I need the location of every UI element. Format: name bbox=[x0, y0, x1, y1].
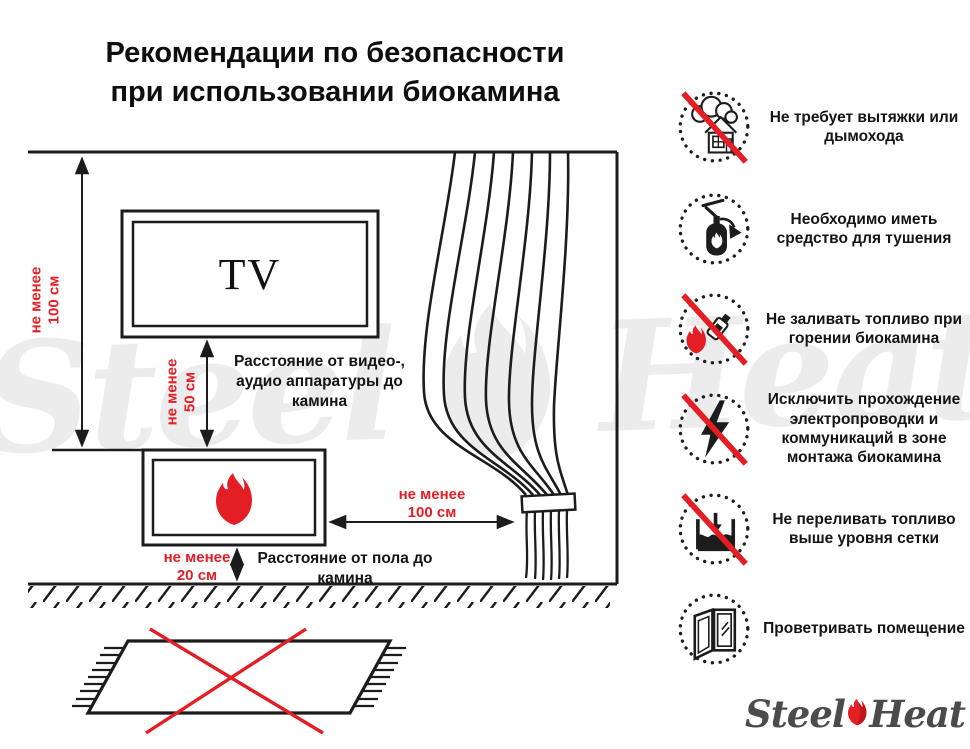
no-wiring-icon bbox=[675, 390, 753, 468]
safety-item-no-wiring: Исключить прохождение электропроводки и … bbox=[655, 388, 967, 470]
no-overfill-icon bbox=[675, 490, 753, 568]
safety-item-extinguisher: Необходимо иметь средство для тушения bbox=[655, 188, 967, 270]
curtain-distance-label: не менее 100 см bbox=[389, 486, 475, 521]
logo-steel-text: Steel bbox=[745, 696, 845, 733]
carpet bbox=[72, 629, 406, 733]
safety-item-text: Не переливать топливо выше уровня сетки bbox=[761, 510, 967, 549]
tv-distance-label: не менее 50 см bbox=[163, 359, 198, 426]
floor-distance-label: не менее 20 см bbox=[155, 549, 239, 584]
floor-distance-caption: Расстояние от пола до камина bbox=[252, 549, 438, 589]
page-title: Рекомендации по безопасности при использ… bbox=[50, 34, 620, 112]
logo-flame-icon bbox=[847, 689, 867, 735]
safety-item-text: Не заливать топливо при горении биокамин… bbox=[761, 310, 967, 349]
tv-distance-caption: Расстояние от видео-, аудио аппаратуры д… bbox=[222, 352, 417, 411]
safety-item-no-overfill: Не переливать топливо выше уровня сетки bbox=[655, 488, 967, 570]
floor-hatching bbox=[28, 586, 610, 608]
fireplace-box bbox=[52, 450, 325, 545]
no-refueling-icon bbox=[675, 290, 753, 368]
page-title-line2: при использовании биокамина bbox=[50, 73, 620, 112]
safety-item-text: Не требует вытяжки или дымохода bbox=[761, 108, 967, 147]
safety-item-ventilation: Проветривать помещение bbox=[655, 588, 967, 670]
page-title-line1: Рекомендации по безопасности bbox=[50, 34, 620, 73]
infographic-page: Steel Heat Рекомендации по безопасности … bbox=[0, 0, 970, 749]
steelheat-logo: Steel Heat bbox=[745, 686, 965, 742]
safety-item-text: Исключить прохождение электропроводки и … bbox=[761, 390, 967, 468]
curtain-tie bbox=[522, 494, 576, 513]
safety-item-no-chimney: Не требует вытяжки или дымохода bbox=[655, 86, 967, 168]
extinguisher-icon bbox=[675, 190, 753, 268]
tv-screen-label: TV bbox=[122, 211, 378, 337]
safety-item-no-refueling: Не заливать топливо при горении биокамин… bbox=[655, 288, 967, 370]
wall-distance-label: не менее 100 см bbox=[27, 267, 62, 334]
ventilation-icon bbox=[675, 590, 753, 668]
curtain-tassels bbox=[526, 511, 568, 580]
no-chimney-icon bbox=[675, 88, 753, 166]
safety-item-text: Необходимо иметь средство для тушения bbox=[761, 210, 967, 249]
logo-heat-text: Heat bbox=[869, 696, 965, 733]
safety-item-text: Проветривать помещение bbox=[761, 619, 967, 638]
